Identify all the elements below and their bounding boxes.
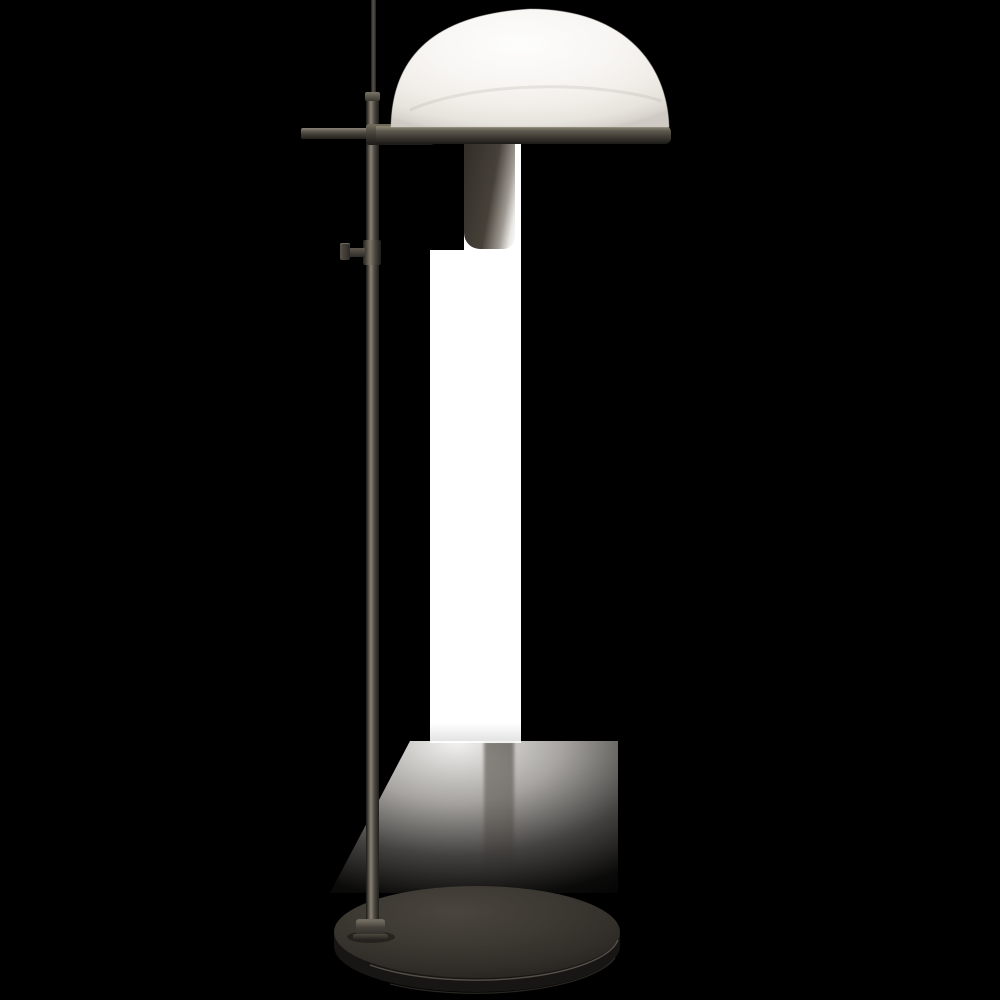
- stem-main-rod: [366, 92, 379, 924]
- stem-ferrule: [365, 92, 380, 101]
- adjustment-knob-cap: [340, 243, 350, 260]
- base-collar-flange: [353, 934, 388, 940]
- stem-cast-shadow: [464, 143, 515, 249]
- stem-upper-rod: [371, 0, 376, 97]
- adjustment-knob: [348, 248, 365, 257]
- stem-cast-shadow-lower: [484, 741, 514, 888]
- background-remnant-column: [430, 250, 521, 743]
- shade-dome-surface: [391, 9, 669, 127]
- product-photo-floor-lamp: [0, 0, 1000, 1000]
- shade-dome: [380, 5, 680, 130]
- stem-clamp: [363, 240, 381, 265]
